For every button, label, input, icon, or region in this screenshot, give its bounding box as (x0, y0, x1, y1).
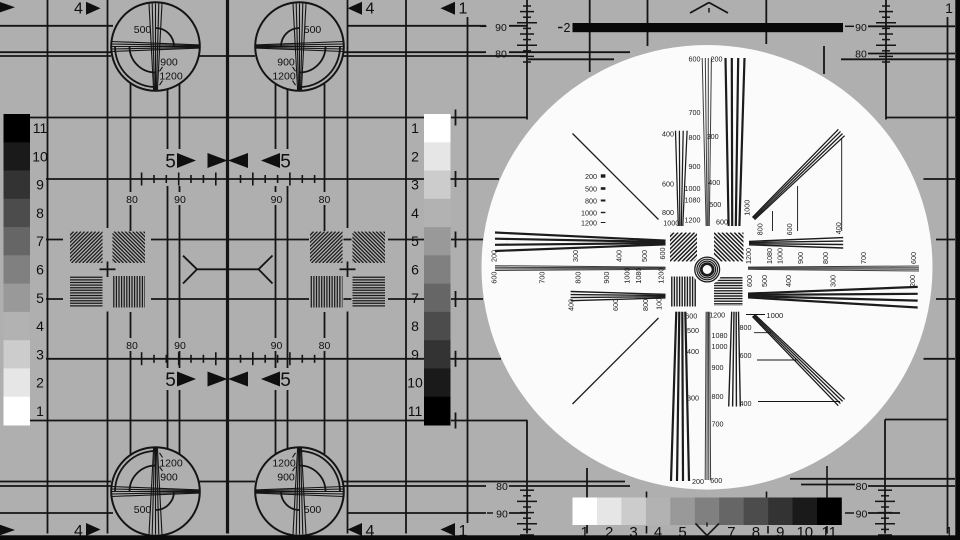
svg-text:200: 200 (585, 172, 597, 181)
svg-text:1: 1 (36, 403, 44, 419)
svg-text:800: 800 (641, 299, 650, 311)
svg-text:200: 200 (692, 477, 704, 486)
svg-text:1200: 1200 (744, 248, 753, 264)
svg-text:400: 400 (708, 178, 720, 187)
svg-text:500: 500 (709, 200, 721, 209)
svg-text:800: 800 (573, 272, 582, 284)
svg-text:11: 11 (33, 120, 48, 136)
svg-text:600: 600 (745, 275, 754, 287)
svg-text:1000: 1000 (663, 219, 679, 228)
svg-text:90: 90 (496, 509, 508, 521)
svg-text:1080: 1080 (685, 196, 701, 205)
svg-text:1200: 1200 (272, 458, 296, 470)
svg-text:1000: 1000 (743, 200, 752, 216)
svg-text:1000: 1000 (581, 209, 597, 218)
svg-text:200: 200 (908, 275, 917, 287)
svg-text:1000: 1000 (655, 294, 664, 310)
svg-text:1000: 1000 (685, 184, 701, 193)
svg-text:400: 400 (740, 399, 752, 408)
svg-text:500: 500 (134, 24, 152, 36)
svg-text:5: 5 (411, 233, 419, 249)
svg-text:10: 10 (32, 148, 48, 164)
svg-text:1080: 1080 (634, 268, 643, 284)
svg-text:600: 600 (689, 55, 701, 64)
svg-text:90: 90 (495, 22, 507, 34)
svg-text:1: 1 (459, 1, 468, 18)
svg-text:300: 300 (571, 250, 580, 262)
svg-text:2: 2 (36, 375, 44, 391)
svg-text:90: 90 (174, 194, 186, 206)
svg-text:1080: 1080 (712, 331, 728, 340)
svg-text:500: 500 (585, 185, 597, 194)
svg-text:800: 800 (689, 133, 701, 142)
svg-text:80: 80 (126, 340, 138, 352)
svg-text:1000: 1000 (712, 342, 728, 351)
svg-text:900: 900 (689, 162, 701, 171)
svg-text:4: 4 (36, 318, 44, 334)
svg-text:11: 11 (408, 403, 423, 419)
svg-text:80: 80 (319, 340, 331, 352)
svg-text:90: 90 (856, 509, 868, 521)
svg-text:1: 1 (411, 120, 419, 136)
svg-text:900: 900 (277, 472, 295, 484)
svg-text:90: 90 (271, 194, 283, 206)
svg-text:400: 400 (784, 275, 793, 287)
svg-text:5: 5 (165, 370, 176, 391)
svg-text:800: 800 (585, 197, 597, 206)
svg-text:9: 9 (36, 177, 44, 193)
svg-text:8: 8 (411, 318, 419, 334)
svg-text:500: 500 (304, 24, 322, 36)
svg-text:1200: 1200 (272, 71, 296, 83)
svg-text:700: 700 (712, 420, 724, 429)
svg-text:900: 900 (160, 472, 178, 484)
svg-text:500: 500 (760, 275, 769, 287)
svg-text:80: 80 (126, 194, 138, 206)
svg-text:8: 8 (36, 205, 44, 221)
svg-text:6: 6 (411, 262, 419, 278)
svg-text:10: 10 (407, 375, 423, 391)
svg-text:5: 5 (280, 370, 291, 391)
svg-text:400: 400 (615, 250, 624, 262)
svg-text:600: 600 (490, 272, 499, 284)
svg-text:900: 900 (277, 57, 295, 69)
svg-text:700: 700 (538, 272, 547, 284)
svg-text:9: 9 (411, 346, 419, 362)
svg-text:90: 90 (855, 22, 867, 34)
svg-text:900: 900 (160, 57, 178, 69)
svg-text:3: 3 (36, 346, 44, 362)
svg-text:400: 400 (662, 130, 674, 139)
svg-text:1000: 1000 (775, 248, 784, 264)
svg-text:4: 4 (411, 205, 419, 221)
svg-text:80: 80 (856, 481, 868, 493)
svg-text:2: 2 (564, 21, 571, 35)
svg-text:700: 700 (689, 108, 701, 117)
svg-text:300: 300 (687, 394, 699, 403)
svg-text:1200: 1200 (159, 71, 183, 83)
svg-text:1000: 1000 (766, 311, 783, 320)
svg-text:5: 5 (165, 152, 176, 173)
svg-text:600: 600 (740, 351, 752, 360)
svg-text:1200: 1200 (159, 458, 183, 470)
svg-text:500: 500 (687, 326, 699, 335)
svg-text:600: 600 (785, 223, 794, 235)
svg-text:300: 300 (829, 275, 838, 287)
svg-text:600: 600 (710, 476, 722, 485)
svg-text:7: 7 (36, 233, 44, 249)
svg-text:90: 90 (174, 340, 186, 352)
svg-text:1: 1 (945, 0, 953, 16)
svg-text:1000: 1000 (623, 268, 632, 284)
svg-text:800: 800 (662, 208, 674, 217)
svg-text:4: 4 (366, 1, 375, 18)
svg-text:500: 500 (134, 504, 152, 516)
svg-text:1200: 1200 (685, 216, 701, 225)
svg-text:900: 900 (712, 363, 724, 372)
svg-text:800: 800 (755, 223, 764, 235)
svg-text:6: 6 (36, 262, 44, 278)
svg-text:7: 7 (411, 290, 419, 306)
svg-text:90: 90 (271, 340, 283, 352)
svg-text:600: 600 (662, 180, 674, 189)
svg-text:900: 900 (796, 252, 805, 264)
svg-text:3: 3 (411, 177, 419, 193)
svg-text:1080: 1080 (765, 248, 774, 264)
svg-text:4: 4 (74, 1, 83, 18)
svg-text:500: 500 (640, 250, 649, 262)
svg-text:400: 400 (687, 347, 699, 356)
svg-text:700: 700 (859, 252, 868, 264)
svg-text:800: 800 (821, 252, 830, 264)
svg-text:800: 800 (740, 323, 752, 332)
svg-text:600: 600 (611, 299, 620, 311)
svg-text:80: 80 (319, 194, 331, 206)
svg-text:1200: 1200 (581, 219, 597, 228)
svg-text:900: 900 (602, 272, 611, 284)
svg-text:5: 5 (36, 290, 44, 306)
svg-text:2: 2 (411, 148, 419, 164)
svg-text:600: 600 (716, 218, 728, 227)
svg-text:80: 80 (855, 49, 867, 61)
svg-text:1200: 1200 (656, 268, 665, 284)
svg-text:600: 600 (909, 252, 918, 264)
svg-text:600: 600 (685, 311, 697, 320)
svg-text:80: 80 (496, 481, 508, 493)
svg-text:500: 500 (304, 504, 322, 516)
svg-text:400: 400 (566, 299, 575, 311)
svg-text:600: 600 (658, 248, 667, 260)
svg-text:200: 200 (711, 55, 723, 64)
svg-text:200: 200 (490, 250, 499, 262)
svg-text:300: 300 (707, 132, 719, 141)
svg-text:80: 80 (495, 49, 507, 61)
svg-text:1200: 1200 (709, 310, 725, 319)
svg-text:800: 800 (712, 392, 724, 401)
svg-text:5: 5 (280, 152, 291, 173)
